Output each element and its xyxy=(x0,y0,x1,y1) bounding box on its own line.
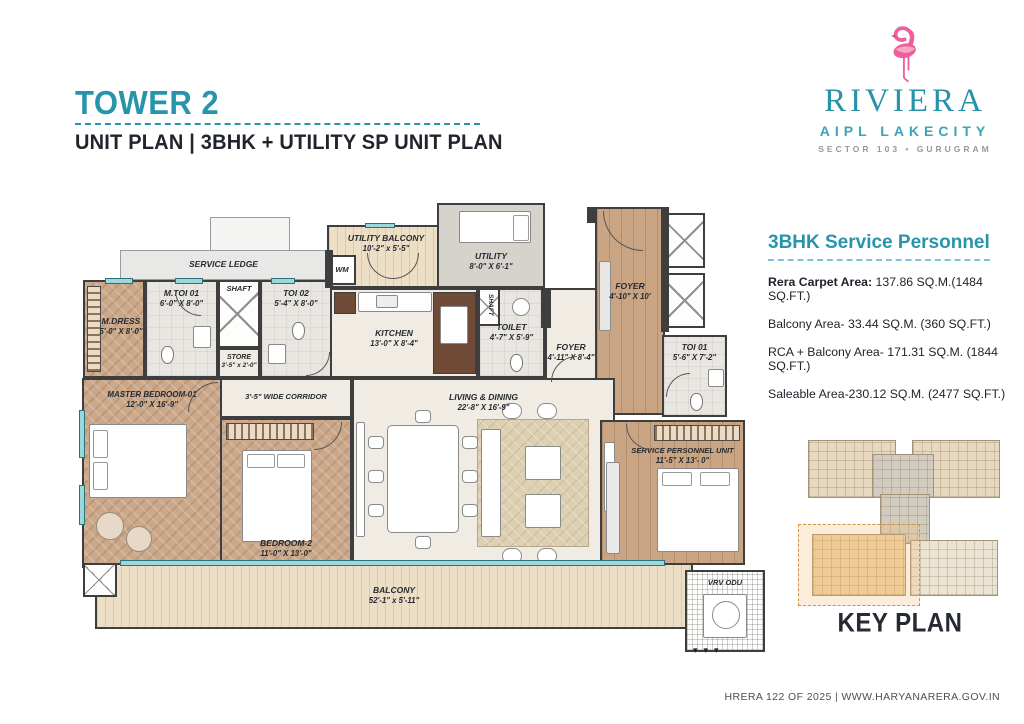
rera-footer: HRERA 122 OF 2025 | WWW.HARYANARERA.GOV.… xyxy=(725,691,1001,703)
balcony-window-band xyxy=(120,560,665,566)
washbasin xyxy=(268,344,286,364)
brand-location: SECTOR 103 • GURUGRAM xyxy=(795,144,1015,154)
window xyxy=(105,278,133,284)
dining-chair xyxy=(368,470,384,483)
keyplan-core-top xyxy=(872,454,934,498)
rera-carpet-area: Rera Carpet Area: 137.86 SQ.M.(1484 SQ.F… xyxy=(768,275,1013,303)
sofa xyxy=(481,429,501,537)
brand-logo: RIVIERA AIPL LAKECITY SECTOR 103 • GURUG… xyxy=(795,22,1015,154)
toilet-fixture xyxy=(510,354,523,372)
brand-subname: AIPL LAKECITY xyxy=(795,123,1015,139)
door-arc xyxy=(188,382,218,412)
pillow xyxy=(277,454,305,468)
window xyxy=(271,278,295,284)
balcony-area: Balcony Area- 33.44 SQ.M. (360 SQ.FT.) xyxy=(768,317,1013,331)
toilet-fixture xyxy=(161,346,174,364)
unit-info-title: 3BHK Service Personnel xyxy=(768,232,990,261)
kitchen-counter xyxy=(334,292,356,314)
saleable-area: Saleable Area-230.12 SQ.M. (2477 SQ.FT.) xyxy=(768,387,1013,401)
service-ledge-step xyxy=(210,217,290,252)
room-utility: UTILITY 8'-0" X 6'-1" xyxy=(437,203,545,288)
room-m-dress: M.DRESS 5'-0" X 8'-0" xyxy=(83,280,145,378)
room-living-dining: LIVING & DINING 22'-8" X 16'-9" xyxy=(352,378,615,565)
room-store: STORE 3'-5" x 2'-0" xyxy=(218,348,260,378)
dining-chair xyxy=(462,470,478,483)
wall-column xyxy=(587,207,597,223)
door-arc xyxy=(603,211,643,251)
room-m-toi-01: M.TOI 01 6'-0" X 8'-0" xyxy=(145,280,218,378)
keyplan-title: KEY PLAN xyxy=(790,609,1010,640)
dining-chair xyxy=(462,436,478,449)
door-arc xyxy=(666,373,690,397)
brand-name: RIVIERA xyxy=(795,83,1015,120)
tv-console xyxy=(356,422,365,537)
room-shaft-top: SHAFT xyxy=(218,280,260,348)
armchair xyxy=(126,526,152,552)
pillow xyxy=(93,430,108,458)
door-arc xyxy=(367,253,393,279)
unit-info-panel: 3BHK Service Personnel Rera Carpet Area:… xyxy=(768,232,1013,401)
washbasin xyxy=(512,298,530,316)
pillow xyxy=(247,454,275,468)
door-arc xyxy=(314,422,342,450)
door-arc xyxy=(626,424,652,450)
window xyxy=(79,410,85,458)
room-balcony: BALCONY 52'-1" x 5'-11" xyxy=(95,563,693,629)
room-vrv-odu: VRV ODU xyxy=(685,570,765,652)
dining-chair xyxy=(368,436,384,449)
hob xyxy=(440,306,468,344)
foyer-console xyxy=(599,261,611,331)
dining-chair xyxy=(368,504,384,517)
door-arc xyxy=(393,253,419,279)
unit-plan-poster: TOWER 2 UNIT PLAN | 3BHK + UTILITY SP UN… xyxy=(0,0,1024,724)
room-corridor: 3'-5" WIDE CORRIDOR xyxy=(220,378,352,418)
pillow xyxy=(662,472,692,486)
room-kitchen: KITCHEN 13'-0" X 8'-4" xyxy=(330,288,478,378)
keyplan-highlight-box xyxy=(798,524,920,606)
room-shaft-small: SHAFT xyxy=(478,288,500,326)
wardrobe xyxy=(654,425,740,441)
room-master-bedroom: MASTER BEDROOM-01 12'-0" X 16'-9" xyxy=(82,378,222,568)
drain-arrows: ▾▾▾ xyxy=(693,645,725,656)
coffee-table xyxy=(525,494,561,528)
wall-column xyxy=(325,250,333,288)
lift-shaft xyxy=(667,213,705,268)
pillow xyxy=(700,472,730,486)
rca-balcony-area: RCA + Balcony Area- 171.31 SQ.M. (1844 S… xyxy=(768,345,1013,373)
room-toi-01: TOI 01 5'-6" X 7'-2" xyxy=(662,335,727,417)
washbasin xyxy=(708,369,724,387)
spu-desk xyxy=(606,462,620,554)
door-arc xyxy=(175,290,201,316)
dining-table xyxy=(387,425,459,533)
toilet-fixture xyxy=(292,322,305,340)
ac-ledge xyxy=(83,563,117,597)
dining-chair xyxy=(462,504,478,517)
pillow xyxy=(93,462,108,490)
wall-column xyxy=(541,288,551,328)
window xyxy=(365,223,395,228)
pillow xyxy=(513,215,529,241)
wardrobe xyxy=(87,286,101,372)
room-service-ledge: SERVICE LEDGE xyxy=(120,250,327,280)
accent-chair xyxy=(502,403,522,419)
flamingo-icon xyxy=(882,22,927,84)
lift-shaft xyxy=(667,273,705,328)
washbasin xyxy=(193,326,211,348)
floor-plan: SERVICE LEDGE UTILITY BALCONY 10'-2" x 5… xyxy=(75,195,767,657)
wall-column xyxy=(661,207,669,332)
page-subtitle: UNIT PLAN | 3BHK + UTILITY SP UNIT PLAN xyxy=(75,131,503,155)
room-bedroom-2: BEDROOM-2 11'-0" X 13'-0" xyxy=(220,418,352,565)
sink xyxy=(376,295,398,308)
keyplan-unit-bottom-right xyxy=(910,540,998,596)
vrv-fan xyxy=(712,601,740,629)
door-arc xyxy=(306,352,330,376)
window xyxy=(79,485,85,525)
wardrobe xyxy=(226,423,314,440)
room-toi-02: TOI 02 5'-4" X 8'-0" xyxy=(260,280,332,378)
dining-chair xyxy=(415,536,431,549)
window xyxy=(175,278,203,284)
door-arc xyxy=(551,356,577,382)
armchair xyxy=(96,512,124,540)
title-divider xyxy=(75,123,480,125)
dining-chair xyxy=(415,410,431,423)
toilet-fixture xyxy=(690,393,703,411)
room-service-personnel-unit: SERVICE PERSONNEL UNIT 11'-5" X 13'- 0" xyxy=(600,420,745,565)
coffee-table xyxy=(525,446,561,480)
accent-chair xyxy=(537,403,557,419)
key-plan xyxy=(790,428,1010,618)
page-title: TOWER 2 xyxy=(75,84,219,123)
